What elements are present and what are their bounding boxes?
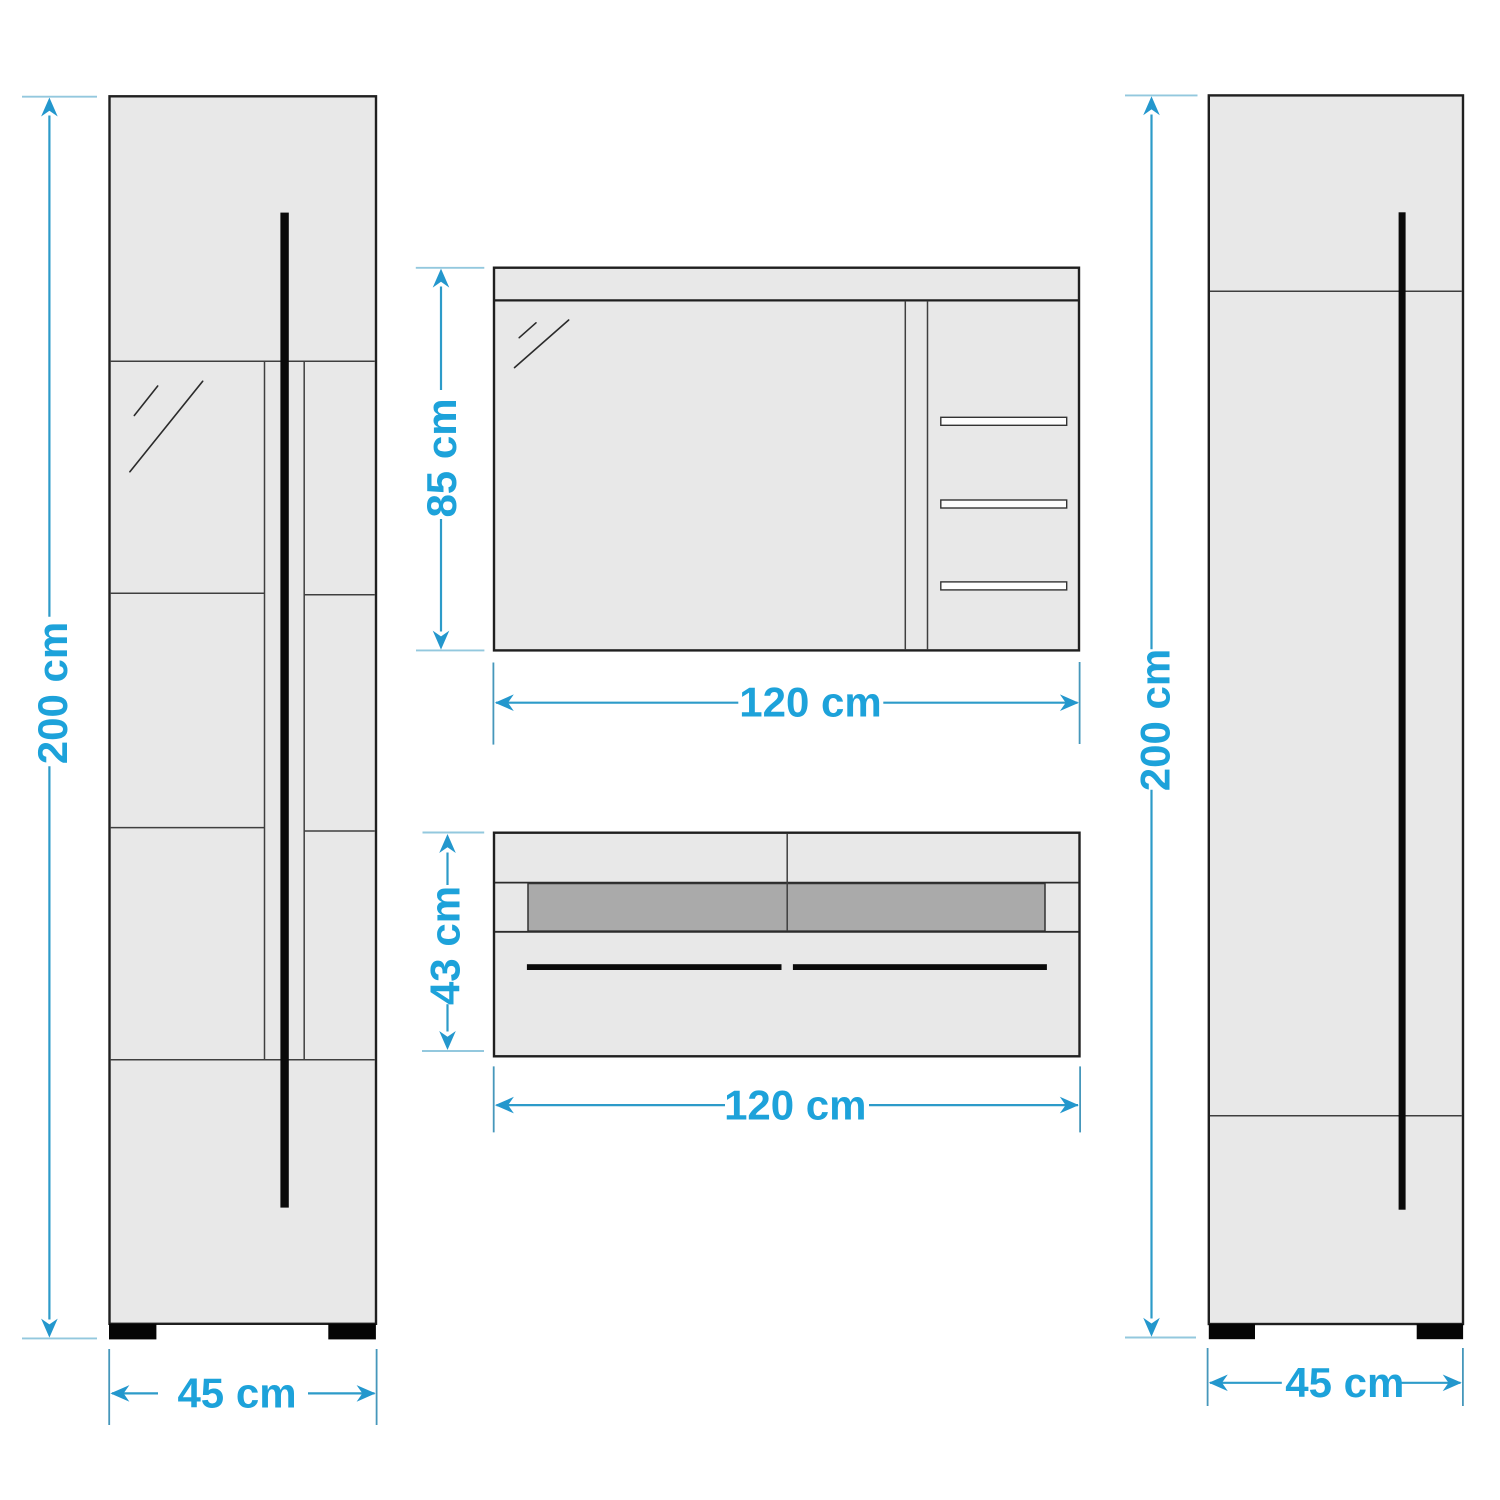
svg-text:120 cm: 120 cm xyxy=(739,679,881,726)
svg-text:43 cm: 43 cm xyxy=(422,886,469,1005)
svg-text:45 cm: 45 cm xyxy=(1285,1359,1404,1406)
svg-text:120 cm: 120 cm xyxy=(724,1081,866,1128)
svg-text:85 cm: 85 cm xyxy=(418,398,465,517)
svg-text:200 cm: 200 cm xyxy=(29,622,76,764)
svg-text:200 cm: 200 cm xyxy=(1132,649,1179,791)
svg-text:45 cm: 45 cm xyxy=(177,1369,296,1416)
